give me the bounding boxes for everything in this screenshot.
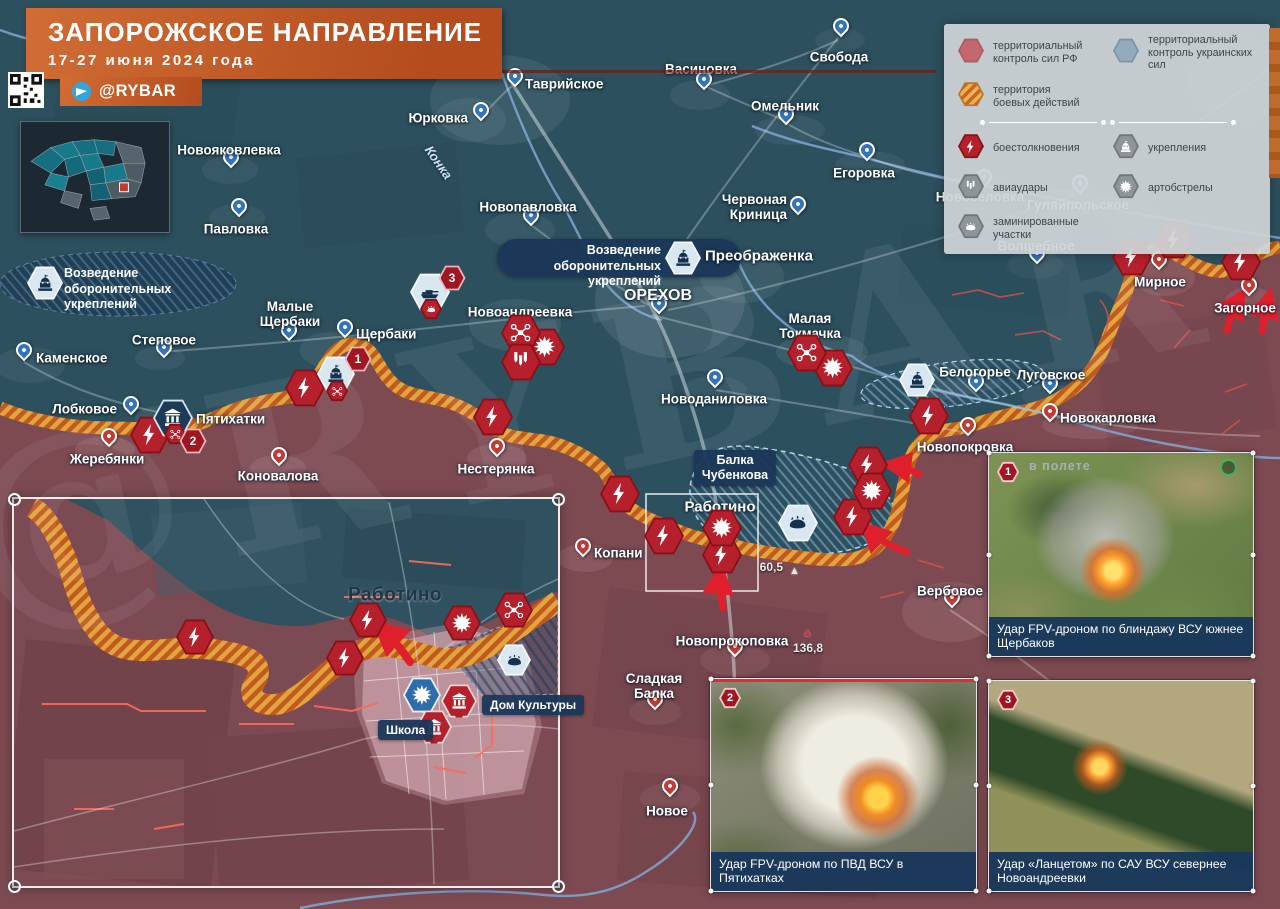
legend-item-mined-areas: заминированные участки xyxy=(958,213,1113,244)
artillery-icon xyxy=(1113,173,1139,204)
record-indicator-icon xyxy=(1220,459,1237,476)
inset-corner-handle xyxy=(552,880,565,893)
ua-territory-swatch xyxy=(1113,38,1139,69)
resize-handle xyxy=(1251,552,1256,557)
strike-photo-3: 3 Удар «Ланцетом» по САУ ВСУ севернее Но… xyxy=(988,680,1254,892)
legend-label: территория боевых действий xyxy=(993,84,1080,109)
resize-handle xyxy=(987,552,992,557)
combat-zone-swatch xyxy=(958,81,984,112)
legend-label: авиаудары xyxy=(993,182,1048,195)
legend-label: артобстрелы xyxy=(1148,182,1213,195)
legend-label: боестолкновения xyxy=(993,142,1080,155)
legend-item-artillery: артобстрелы xyxy=(1113,173,1258,204)
photo-marker-badge: 1 xyxy=(997,461,1019,483)
resize-handle xyxy=(987,654,992,659)
clashes-icon xyxy=(958,133,984,164)
resize-handle xyxy=(1251,889,1256,894)
airstrikes-icon xyxy=(958,173,984,204)
resize-handle xyxy=(987,679,992,684)
legend-panel: территориальный контроль сил РФ территор… xyxy=(944,24,1270,254)
photo-marker-badge: 2 xyxy=(719,687,741,709)
legend-item-airstrikes: авиаудары xyxy=(958,173,1113,204)
legend-label: заминированные участки xyxy=(993,216,1113,241)
date-range: 17-27 июня 2024 года xyxy=(48,52,482,69)
map-edge-strip xyxy=(1269,28,1280,178)
region-marker xyxy=(120,183,129,192)
resize-handle xyxy=(709,677,714,682)
legend-item-clashes: боестолкновения xyxy=(958,133,1113,164)
photo-overlay-text: в полете xyxy=(1029,459,1091,473)
photo-caption: Удар «Ланцетом» по САУ ВСУ севернее Ново… xyxy=(989,852,1253,891)
legend-item-rf-control: территориальный контроль сил РФ xyxy=(958,34,1113,72)
qr-code xyxy=(8,72,44,108)
photo-marker-badge: 3 xyxy=(997,689,1019,711)
resize-handle xyxy=(974,889,979,894)
mined-areas-icon xyxy=(958,213,984,244)
channel-handle: @RYBAR xyxy=(99,82,176,101)
map-title: ЗАПОРОЖСКОЕ НАПРАВЛЕНИЕ xyxy=(48,17,482,48)
title-banner: ЗАПОРОЖСКОЕ НАПРАВЛЕНИЕ 17-27 июня 2024 … xyxy=(26,8,502,79)
resize-handle xyxy=(1251,679,1256,684)
resize-handle xyxy=(974,677,979,682)
fort-construction-label-orekhov: Возведение оборонительных укреплений xyxy=(509,243,661,290)
fort-construction-label-west: Возведение оборонительных укреплений xyxy=(64,266,244,313)
resize-handle xyxy=(987,451,992,456)
resize-handle xyxy=(709,783,714,788)
legend-label: территориальный контроль украинских сил xyxy=(1148,34,1258,72)
strike-photo-2: 2 Удар FPV-дроном по ПВД ВСУ в Пятихатка… xyxy=(710,678,977,892)
legend-item-ua-control: территориальный контроль украинских сил xyxy=(1113,34,1258,72)
strike-photo-1: 1 в полете Удар FPV-дроном по блиндажу В… xyxy=(988,452,1254,657)
fortifications-icon xyxy=(1113,133,1139,164)
school-label: Школа xyxy=(378,720,433,740)
ukraine-overview-minimap xyxy=(20,121,170,233)
legend-label: укрепления xyxy=(1148,142,1206,155)
dom-kultury-label: Дом Культуры xyxy=(482,695,584,715)
resize-handle xyxy=(987,889,992,894)
legend-divider xyxy=(980,120,1236,125)
telegram-channel-bar[interactable]: @RYBAR xyxy=(60,77,202,106)
inset-corner-handle xyxy=(8,493,21,506)
legend-label: территориальный контроль сил РФ xyxy=(993,40,1082,65)
resize-handle xyxy=(1251,451,1256,456)
resize-handle xyxy=(974,783,979,788)
inset-corner-handle xyxy=(8,880,21,893)
telegram-icon xyxy=(72,82,91,101)
photo-caption: Удар FPV-дроном по ПВД ВСУ в Пятихатках xyxy=(711,852,976,891)
resize-handle xyxy=(709,889,714,894)
rf-territory-swatch xyxy=(958,38,984,69)
legend-item-fortifications: укрепления xyxy=(1113,133,1258,164)
video-progress-line xyxy=(711,679,976,682)
resize-handle xyxy=(1251,654,1256,659)
legend-item-combat-zone: территория боевых действий xyxy=(958,81,1113,112)
resize-handle xyxy=(1251,784,1256,789)
photo-caption: Удар FPV-дроном по блиндажу ВСУ южнее Ще… xyxy=(989,617,1253,656)
resize-handle xyxy=(987,784,992,789)
balka-label: Балка Чубенкова xyxy=(694,450,776,486)
inset-corner-handle xyxy=(552,493,565,506)
rabotino-inset-map xyxy=(12,497,560,888)
war-map: @RYBAR xyxy=(0,0,1280,909)
